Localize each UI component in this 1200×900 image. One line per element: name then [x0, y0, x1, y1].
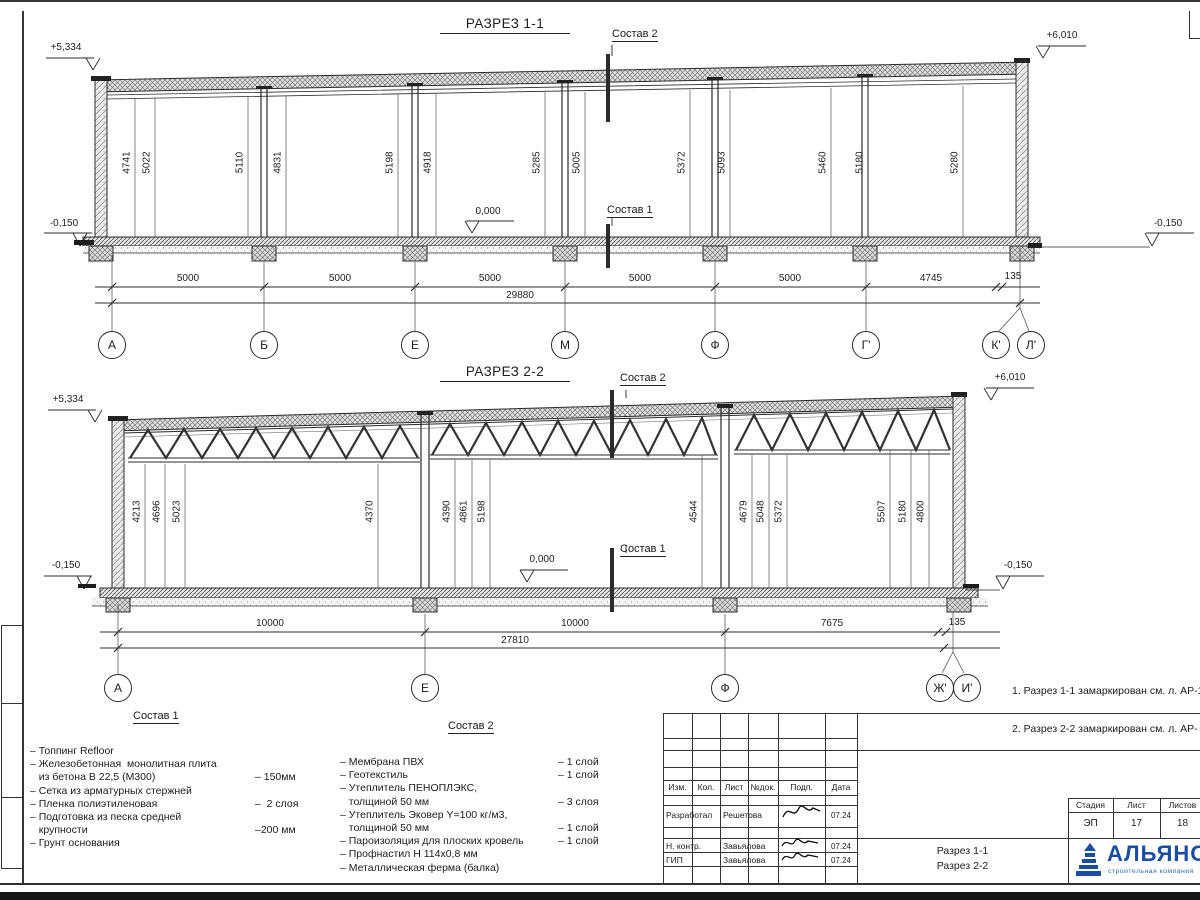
tb-name: Завьялова [723, 841, 765, 851]
height-dim: 4390 [442, 490, 453, 534]
section2-cut-top-label: Состав 2 [620, 372, 666, 386]
legend-item: из бетона В 22,5 (М300)– 150мм [30, 771, 340, 784]
stage-value: ЭП [1068, 818, 1113, 829]
alliance-logo-subtext: строительная компания [1108, 868, 1194, 875]
span-dim: 135 [940, 617, 974, 628]
legend-item: – Геотекстиль– 1 слой [340, 769, 640, 782]
axis-bubble: А [98, 331, 126, 359]
axis-bubble: М [551, 331, 579, 359]
elevation-mark: -0,150 [42, 560, 90, 571]
margin-box-1 [1, 625, 23, 704]
legend-item: – Утеплитель Эковер Y=100 кг/м3, [340, 809, 640, 822]
legend-item: – Топпинг Refloor [30, 745, 340, 758]
height-dim: 5285 [532, 141, 543, 185]
axis-bubble: Б [250, 331, 278, 359]
tb-name: Решетова [723, 810, 762, 820]
height-dim: 4696 [152, 490, 163, 534]
legend-item: – Подготовка из песка средней [30, 811, 340, 824]
alliance-logo-icon [1075, 842, 1105, 880]
height-dim: 5005 [572, 141, 583, 185]
height-dim: 5198 [385, 141, 396, 185]
drawing-sheet: { "s1": { "title": "РАЗРЕЗ 1-1", "elev":… [0, 0, 1200, 900]
alliance-logo-text: АЛЬЯНС [1107, 841, 1200, 867]
legend-item: крупности–200 мм [30, 824, 340, 837]
signature [779, 849, 823, 865]
axis-bubble: Е [401, 331, 429, 359]
height-dim: 4544 [689, 490, 700, 534]
frame-corner-stamp [1189, 11, 1190, 38]
sheets-value: 18 [1160, 818, 1200, 829]
margin-box-3 [1, 797, 23, 869]
tb-name: Завьялова [723, 855, 765, 865]
height-dim: 5507 [877, 490, 888, 534]
legend1-title: Состав 1 [133, 710, 179, 724]
tb-date: 07.24 [825, 811, 857, 820]
legend-item: – Грунт основания [30, 837, 340, 850]
span-dim: 135 [996, 271, 1030, 282]
tb-col-izm: Изм. [663, 782, 692, 792]
height-dim: 4861 [459, 490, 470, 534]
frame-corner-stamp-bottom [1189, 38, 1200, 39]
legend-item: – Утеплитель ПЕНОПЛЭКС, [340, 782, 640, 795]
legend-item: толщиной 50 мм– 1 слой [340, 822, 640, 835]
tb-date: 07.24 [825, 856, 857, 865]
elevation-mark: +6,010 [986, 372, 1034, 383]
elevation-mark: +6,010 [1038, 30, 1086, 41]
elevation-mark: +5,334 [42, 42, 90, 53]
note-line-1: 1. Разрез 1-1 замаркирован см. л. АР-15 [1012, 685, 1200, 698]
span-dim: 5000 [158, 273, 218, 284]
tb-col-list: Лист [720, 782, 748, 792]
axis-bubble: Г' [852, 331, 880, 359]
height-dim: 5180 [855, 141, 866, 185]
tb-col-kol: Кол. [692, 782, 720, 792]
axis-bubble: Л' [1017, 331, 1045, 359]
span-dim: 5000 [310, 273, 370, 284]
height-dim: 4213 [132, 490, 143, 534]
legend-item: – Сетка из арматурных стержней [30, 785, 340, 798]
height-dim: 5280 [950, 141, 961, 185]
elevation-mark: -0,150 [1144, 218, 1192, 229]
span-dim: 5000 [460, 273, 520, 284]
axis-bubble: А [104, 674, 132, 702]
height-dim: 4370 [365, 490, 376, 534]
legend-item: – Профнастил Н 114х0,8 мм [340, 848, 640, 861]
height-dim: 5110 [235, 141, 246, 185]
total-dim: 27810 [485, 635, 545, 646]
height-dim: 5022 [142, 141, 153, 185]
axis-bubble: И' [953, 674, 981, 702]
height-dim: 5460 [818, 141, 829, 185]
section1-title: РАЗРЕЗ 1-1 [440, 16, 570, 34]
doc-title-line2: Разрез 2-2 [857, 860, 1068, 872]
legend-item: – Мембрана ПВХ– 1 слой [340, 756, 640, 769]
height-dim: 5093 [717, 141, 728, 185]
legend-item: – Пароизоляция для плоских кровель– 1 сл… [340, 835, 640, 848]
axis-bubble: Ф [701, 331, 729, 359]
bottom-edge-band [0, 892, 1200, 900]
tb-col-data: Дата [825, 782, 857, 792]
height-dim: 5198 [477, 490, 488, 534]
tb-role: ГИП [666, 855, 683, 865]
elevation-mark: 0,000 [518, 554, 566, 565]
elevation-mark: +5,334 [44, 394, 92, 405]
height-dim: 4918 [423, 141, 434, 185]
section2-cut-bottom-label: Состав 1 [620, 543, 666, 557]
span-dim: 10000 [545, 618, 605, 629]
tb-col-podp: Подп. [778, 782, 825, 792]
tb-role: Н. контр. [666, 841, 701, 851]
height-dim: 5023 [172, 490, 183, 534]
height-dim: 5372 [677, 141, 688, 185]
section1-cut-bottom-label: Состав 1 [607, 204, 653, 218]
sheets-header: Листов [1160, 800, 1200, 810]
sheet-value: 17 [1113, 818, 1160, 829]
height-dim: 4741 [122, 141, 133, 185]
height-dim: 4831 [273, 141, 284, 185]
elevation-mark: -0,150 [40, 218, 88, 229]
tb-role: Разработал [666, 810, 712, 820]
legend-item: – Пленка полиэтиленовая– 2 слоя [30, 798, 340, 811]
height-dim: 4679 [739, 490, 750, 534]
signature [779, 799, 823, 825]
span-dim: 5000 [610, 273, 670, 284]
sheet-header: Лист [1113, 800, 1160, 810]
tb-col-ndok: №док. [748, 782, 778, 792]
legend2-title: Состав 2 [448, 720, 494, 734]
elevation-mark: 0,000 [464, 206, 512, 217]
frame-top-line [0, 0, 1200, 2]
stage-header: Стадия [1068, 800, 1113, 810]
section2-title: РАЗРЕЗ 2-2 [440, 364, 570, 382]
legend-item: толщиной 50 мм– 3 слоя [340, 796, 640, 809]
section-1-1-geometry [44, 45, 1194, 331]
height-dim: 5048 [756, 490, 767, 534]
span-dim: 4745 [901, 273, 961, 284]
span-dim: 7675 [802, 618, 862, 629]
tb-date: 07.24 [825, 842, 857, 851]
span-dim: 10000 [240, 618, 300, 629]
axis-bubble: Ж' [926, 674, 954, 702]
axis-bubble: Е [411, 674, 439, 702]
axis-bubble: Ф [711, 674, 739, 702]
total-dim: 29880 [490, 290, 550, 301]
margin-box-2 [1, 703, 23, 798]
elevation-mark: -0,150 [994, 560, 1042, 571]
height-dim: 5180 [898, 490, 909, 534]
doc-title-line1: Разрез 1-1 [857, 845, 1068, 857]
section-2-2-geometry [44, 388, 1044, 674]
section1-cut-top-label: Состав 2 [612, 28, 658, 42]
legend-item: – Металлическая ферма (балка) [340, 862, 640, 875]
height-dim: 5372 [774, 490, 785, 534]
height-dim: 4800 [916, 490, 927, 534]
legend-item: – Железобетонная монолитная плита [30, 758, 340, 771]
axis-bubble: К' [982, 331, 1010, 359]
title-block: Изм. Кол. Лист №док. Подп. Дата Разработ… [663, 713, 1200, 884]
span-dim: 5000 [760, 273, 820, 284]
